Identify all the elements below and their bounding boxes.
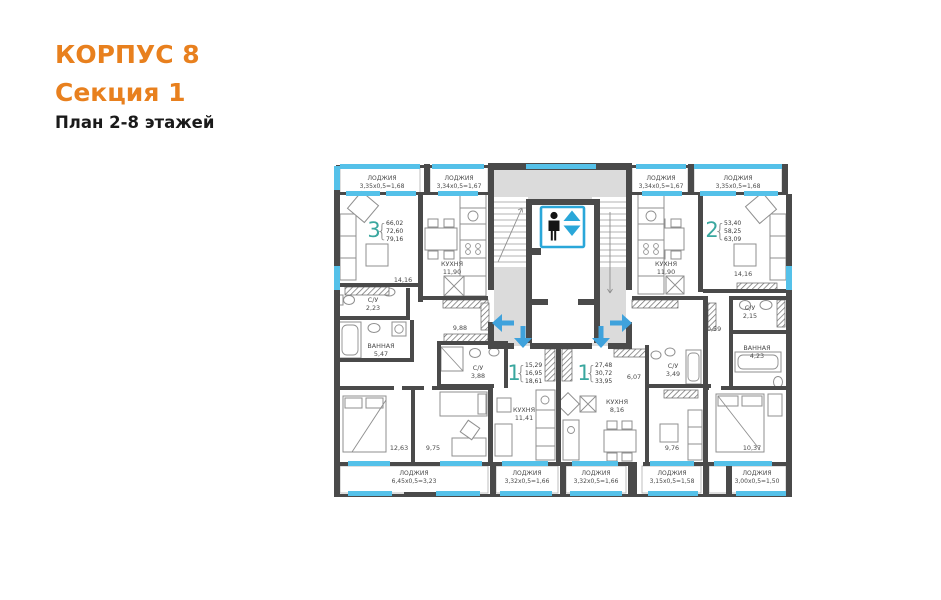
- room-area: 12,63: [390, 444, 408, 452]
- apartment-area: 15,29: [525, 362, 542, 369]
- studio2-room: [660, 410, 702, 460]
- room-area: 4,23: [750, 352, 764, 360]
- room-name: ВАННАЯ: [743, 344, 770, 352]
- room-name: КУХНЯ: [513, 406, 535, 414]
- elevator-icon: [541, 207, 584, 247]
- room-area: 11,90: [443, 268, 461, 276]
- room-name: С/У: [745, 304, 756, 312]
- room-area: 9,76: [665, 444, 679, 452]
- coffee-table: [366, 244, 388, 266]
- room-area: 5,47: [374, 350, 388, 358]
- loggia-label: ЛОДЖИЯ: [512, 470, 541, 477]
- room-name: КУХНЯ: [441, 260, 463, 268]
- room-area: 11,90: [657, 268, 675, 276]
- loggia-label: ЛОДЖИЯ: [581, 470, 610, 477]
- room-area: 2,23: [366, 304, 380, 312]
- room-area: 3,49: [666, 370, 680, 378]
- bathroom-left: [339, 322, 406, 358]
- room-area: 11,41: [515, 414, 533, 422]
- room-area: 8,16: [610, 406, 624, 414]
- loggia-label: ЛОДЖИЯ: [367, 175, 396, 182]
- loggia-label: ЛОДЖИЯ: [646, 175, 675, 182]
- room-name: С/У: [473, 364, 484, 372]
- room-area: 10,59: [703, 325, 721, 333]
- loggia-label: ЛОДЖИЯ: [399, 470, 428, 477]
- apartment-area: 53,40: [724, 220, 741, 227]
- apartment-area: 58,25: [724, 228, 741, 235]
- loggia-dims: 3,15х0,5=1,58: [650, 478, 695, 485]
- apartment-1-right-label: 1 { 27,48 30,72 33,95: [577, 361, 612, 385]
- room-area: 2,15: [743, 312, 757, 320]
- room-name: ВАННАЯ: [367, 342, 394, 350]
- single-bed-left: [440, 392, 487, 456]
- loggia-dims: 3,32х0,5=1,66: [574, 478, 619, 485]
- living-right-furniture: [734, 193, 786, 280]
- loggia-dims: 3,35х0,5=1,68: [360, 183, 405, 190]
- dining-set-left: [425, 219, 457, 259]
- stove-left: [444, 276, 464, 296]
- loggia-dims: 3,32х0,5=1,66: [505, 478, 550, 485]
- loggia-dims: 3,34х0,5=1,67: [639, 183, 684, 190]
- stove-right: [666, 276, 684, 294]
- loggia-label: ЛОДЖИЯ: [742, 470, 771, 477]
- room-name: КУХНЯ: [606, 398, 628, 406]
- loggia-dims: 3,00х0,5=1,50: [735, 478, 780, 485]
- loggia-label: ЛОДЖИЯ: [444, 175, 473, 182]
- loggia-label: ЛОДЖИЯ: [657, 470, 686, 477]
- apartment-area: 16,95: [525, 370, 542, 377]
- room-area: 14,16: [734, 270, 752, 278]
- room-area: 9,88: [453, 324, 467, 332]
- floor-plan-page: КОРПУС 8 Секция 1 План 2-8 этажей: [0, 0, 941, 600]
- loggia-dims: 6,45х0,5=3,23: [392, 478, 437, 485]
- apartment-area: 27,48: [595, 362, 612, 369]
- apartment-area: 33,95: [595, 378, 612, 385]
- loggia-dims: 3,34х0,5=1,67: [437, 183, 482, 190]
- room-area: 6,07: [627, 373, 641, 381]
- room-name: КУХНЯ: [655, 260, 677, 268]
- room-area: 9,75: [426, 444, 440, 452]
- apartment-3-label: 3 { 66,02 72,60 79,16: [367, 218, 403, 243]
- apartment-2-label: 2 { 53,40 58,25 63,09: [705, 218, 741, 243]
- room-name: С/У: [368, 296, 379, 304]
- apartment-area: 63,09: [724, 236, 741, 243]
- room-name: С/У: [668, 362, 679, 370]
- stair-core: [494, 170, 626, 346]
- apartment-area: 66,02: [386, 220, 403, 227]
- apartment-area: 18,61: [525, 378, 542, 385]
- sofa: [340, 214, 356, 280]
- room-area: 14,16: [394, 276, 412, 284]
- studio1-wc: [441, 347, 499, 371]
- studio1-kitchen: [495, 390, 555, 460]
- loggia-label: ЛОДЖИЯ: [723, 175, 752, 182]
- room-area: 3,88: [471, 372, 485, 380]
- apartment-area: 72,60: [386, 228, 403, 235]
- loggia-dims: 3,35х0,5=1,68: [716, 183, 761, 190]
- double-bed-left: [343, 396, 386, 452]
- kitchen-counter-right: [638, 194, 664, 294]
- apartment-1-left-label: 1 { 15,29 16,95 18,61: [507, 361, 542, 385]
- room-area: 10,37: [743, 444, 761, 452]
- apartment-area: 79,16: [386, 236, 403, 243]
- apartment-area: 30,72: [595, 370, 612, 377]
- floor-plan-drawing: ЛОДЖИЯ 3,35х0,5=1,68 ЛОДЖИЯ 3,34х0,5=1,6…: [0, 0, 941, 600]
